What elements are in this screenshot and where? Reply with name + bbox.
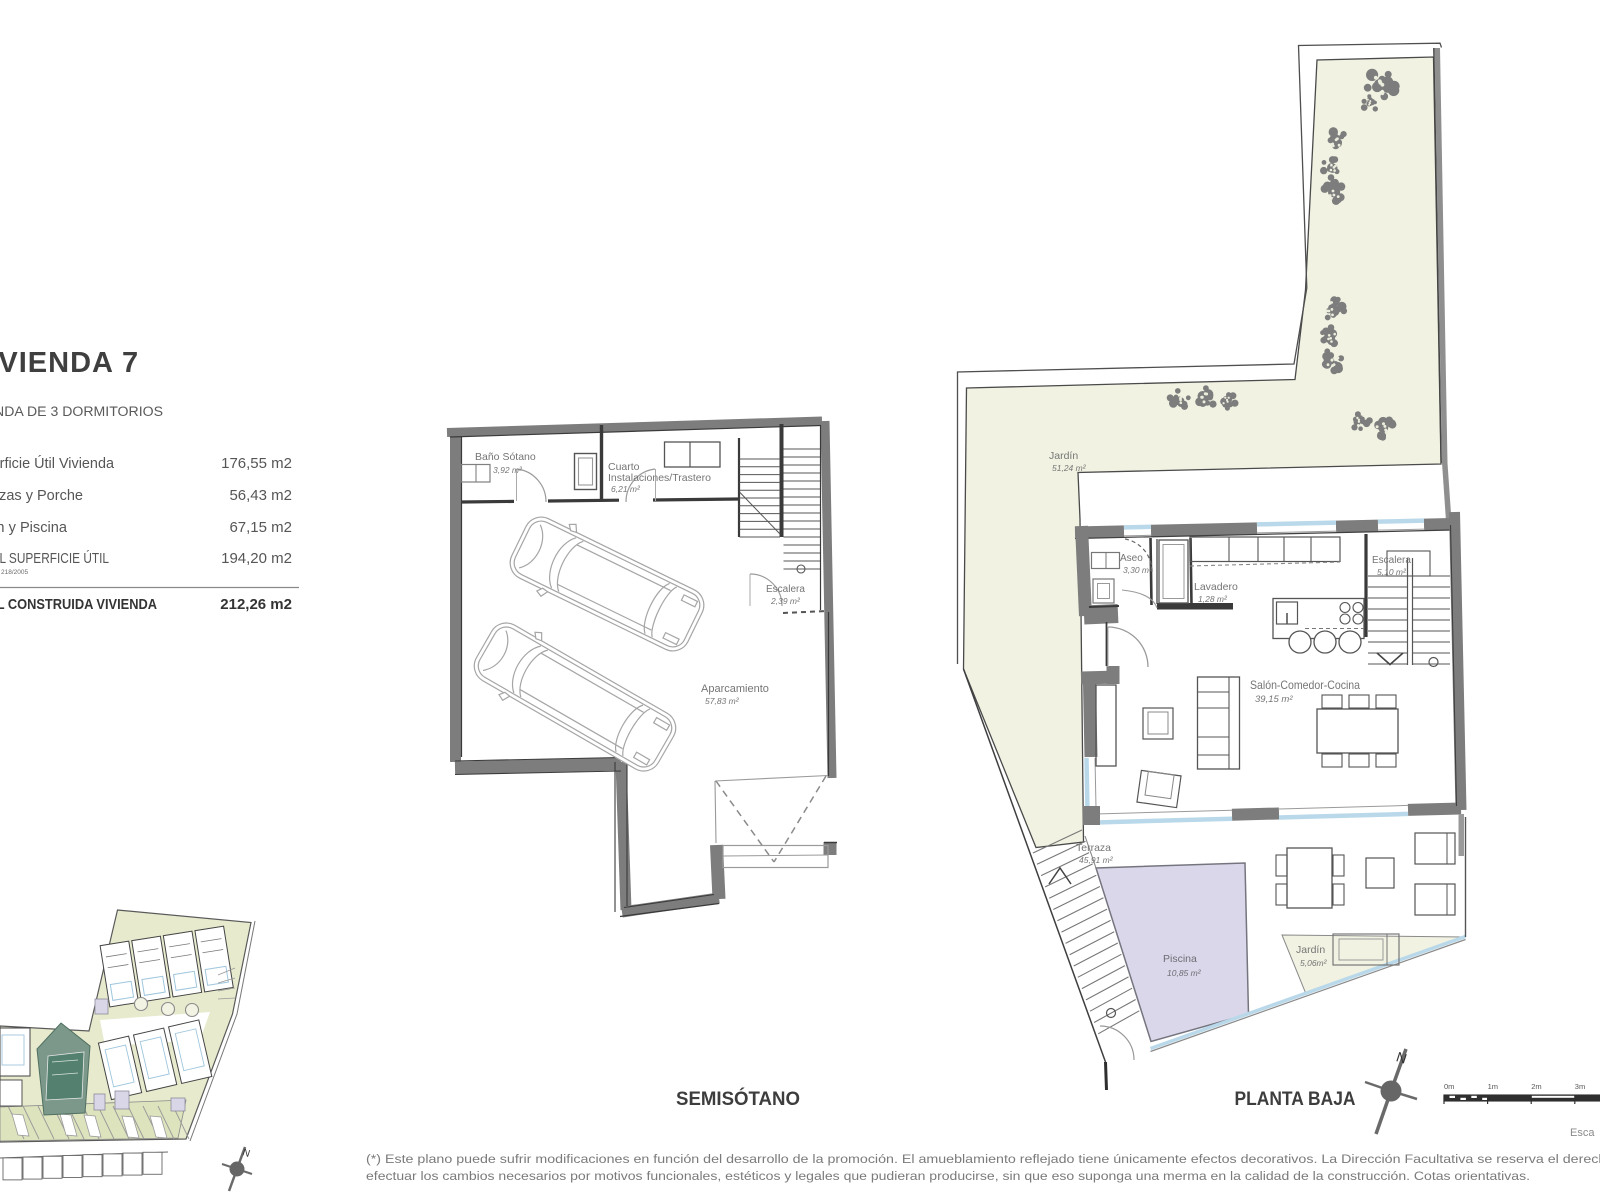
svg-text:Instalaciones/Trastero: Instalaciones/Trastero bbox=[608, 472, 711, 484]
svg-text:51,24 m²: 51,24 m² bbox=[1052, 463, 1087, 473]
svg-text:176,55 m2: 176,55 m2 bbox=[221, 455, 292, 472]
svg-text:2m: 2m bbox=[1531, 1082, 1541, 1091]
svg-text:Jardín y Piscina: Jardín y Piscina bbox=[0, 519, 68, 536]
svg-text:39,15 m²: 39,15 m² bbox=[1255, 694, 1293, 705]
svg-text:SEMISÓTANO: SEMISÓTANO bbox=[676, 1088, 800, 1110]
svg-text:Escalera: Escalera bbox=[766, 584, 805, 595]
svg-text:Jardín: Jardín bbox=[1049, 450, 1078, 462]
svg-text:Lavadero: Lavadero bbox=[1194, 581, 1238, 593]
svg-text:TOTAL CONSTRUIDA VIVIENDA: TOTAL CONSTRUIDA VIVIENDA bbox=[0, 596, 157, 613]
svg-text:Superficie Útil Vivienda: Superficie Útil Vivienda bbox=[0, 455, 115, 472]
svg-text:2,39 m²: 2,39 m² bbox=[770, 596, 801, 606]
svg-text:Terrazas y Porche: Terrazas y Porche bbox=[0, 487, 83, 504]
svg-text:Piscina: Piscina bbox=[1163, 953, 1197, 965]
svg-text:VIVIENDA 7: VIVIENDA 7 bbox=[0, 347, 139, 379]
svg-text:56,43 m2: 56,43 m2 bbox=[229, 487, 292, 504]
svg-text:Salón-Comedor-Cocina: Salón-Comedor-Cocina bbox=[1250, 678, 1360, 692]
svg-text:1m: 1m bbox=[1488, 1082, 1498, 1091]
svg-text:6,21 m²: 6,21 m² bbox=[611, 484, 641, 494]
svg-text:67,15 m2: 67,15 m2 bbox=[229, 519, 292, 536]
svg-text:Terraza: Terraza bbox=[1076, 842, 1111, 854]
svg-text:212,26 m2: 212,26 m2 bbox=[220, 596, 292, 613]
svg-text:0m: 0m bbox=[1444, 1082, 1454, 1091]
svg-text:3m: 3m bbox=[1575, 1082, 1585, 1091]
svg-text:Aseo: Aseo bbox=[1120, 553, 1143, 564]
svg-text:5,10 m²: 5,10 m² bbox=[1377, 567, 1407, 577]
svg-text:Jardín: Jardín bbox=[1296, 944, 1325, 956]
svg-text:TOTAL SUPERFICIE ÚTIL: TOTAL SUPERFICIE ÚTIL bbox=[0, 550, 109, 567]
svg-text:Aparcamiento: Aparcamiento bbox=[701, 683, 769, 695]
svg-text:PLANTA BAJA: PLANTA BAJA bbox=[1235, 1089, 1356, 1110]
svg-text:57,83 m²: 57,83 m² bbox=[705, 696, 740, 706]
svg-text:45,91 m²: 45,91 m² bbox=[1079, 855, 1114, 865]
svg-text:Escalera: Escalera bbox=[1372, 555, 1411, 566]
svg-text:Esca: Esca bbox=[1570, 1127, 1595, 1139]
svg-text:3,92 m²: 3,92 m² bbox=[493, 465, 523, 475]
svg-text:(*) Este plano puede sufrir mo: (*) Este plano puede sufrir modificacion… bbox=[366, 1152, 1600, 1166]
svg-text:194,20 m2: 194,20 m2 bbox=[221, 550, 292, 567]
svg-text:VIVIENDA DE 3 DORMITORIOS: VIVIENDA DE 3 DORMITORIOS bbox=[0, 404, 163, 419]
svg-text:efectuar los cambios necesario: efectuar los cambios necesarios por moti… bbox=[366, 1169, 1530, 1183]
svg-text:5,06m²: 5,06m² bbox=[1300, 958, 1328, 968]
svg-text:10,85 m²: 10,85 m² bbox=[1167, 968, 1202, 978]
svg-text:Baño Sótano: Baño Sótano bbox=[475, 451, 536, 463]
svg-text:1,28 m²: 1,28 m² bbox=[1198, 594, 1228, 604]
svg-text:218/2005: 218/2005 bbox=[1, 569, 28, 576]
svg-text:3,30 m²: 3,30 m² bbox=[1123, 565, 1153, 575]
